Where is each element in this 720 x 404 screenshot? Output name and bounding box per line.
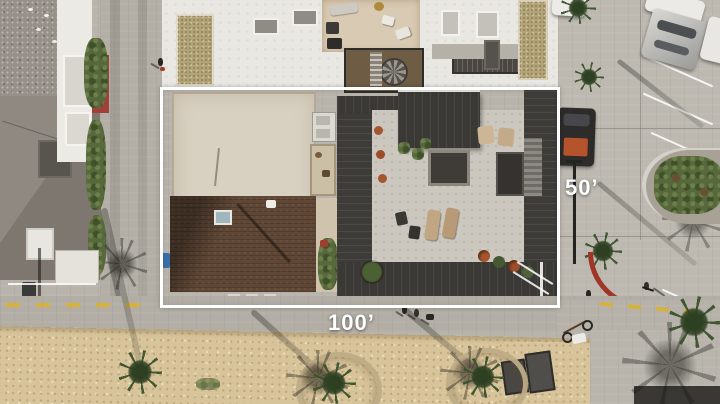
centerline-dashes-left	[6, 303, 156, 307]
truck-cab	[563, 114, 589, 127]
palm-trunk-base	[672, 174, 680, 182]
north-khaki-roof	[176, 14, 214, 86]
palm-tree-small	[574, 62, 604, 92]
spiral-staircase	[382, 60, 406, 84]
skylight	[253, 18, 279, 35]
depth-dimension-label: 50’	[565, 175, 599, 201]
palm-canopy-right	[668, 296, 720, 348]
property-boundary-outline	[160, 87, 560, 308]
rear-window	[653, 39, 690, 57]
skylight	[292, 9, 318, 26]
bbq-grill	[327, 38, 342, 49]
truck-cargo	[563, 138, 588, 157]
person-body	[158, 58, 163, 66]
aerial-photo: 100’ 50’	[0, 0, 720, 404]
lounge-chairs	[329, 2, 358, 16]
street-pole-arm	[566, 160, 582, 163]
chimney	[484, 40, 500, 70]
expansion-joint	[640, 0, 641, 240]
parked-truck-dark	[556, 107, 596, 166]
painted-curb-line	[8, 283, 96, 285]
skylight	[441, 10, 460, 36]
red-cart	[160, 67, 165, 71]
planter	[374, 2, 384, 11]
palm-trunk-base	[700, 188, 708, 196]
pedestrian-group	[402, 306, 438, 332]
patio-table	[326, 22, 339, 34]
stair-flight	[370, 52, 382, 86]
person-body	[414, 309, 419, 317]
white-sculpture	[395, 26, 412, 40]
bird	[28, 8, 33, 11]
island-shrubs	[654, 156, 720, 214]
skylight	[476, 11, 499, 38]
beach-palm	[118, 350, 162, 394]
beach-palm	[312, 362, 356, 404]
rooftop-terrace	[322, 0, 420, 52]
white-storage-box	[55, 250, 99, 284]
frontage-dimension-label: 100’	[328, 310, 375, 336]
parked-bike	[562, 318, 592, 344]
hedge	[86, 120, 106, 210]
roof-gray-band	[432, 44, 524, 59]
beach-palm	[462, 356, 504, 398]
white-sculpture	[381, 15, 395, 27]
north-khaki-roof	[518, 0, 548, 80]
hedge	[84, 38, 108, 108]
dune-grass	[196, 378, 220, 390]
white-towel	[571, 333, 587, 345]
beach-bench	[524, 350, 555, 393]
bird	[36, 28, 41, 31]
stroller	[426, 314, 434, 320]
bike-wheel	[582, 320, 593, 331]
bird	[44, 14, 49, 17]
windshield	[656, 19, 697, 40]
